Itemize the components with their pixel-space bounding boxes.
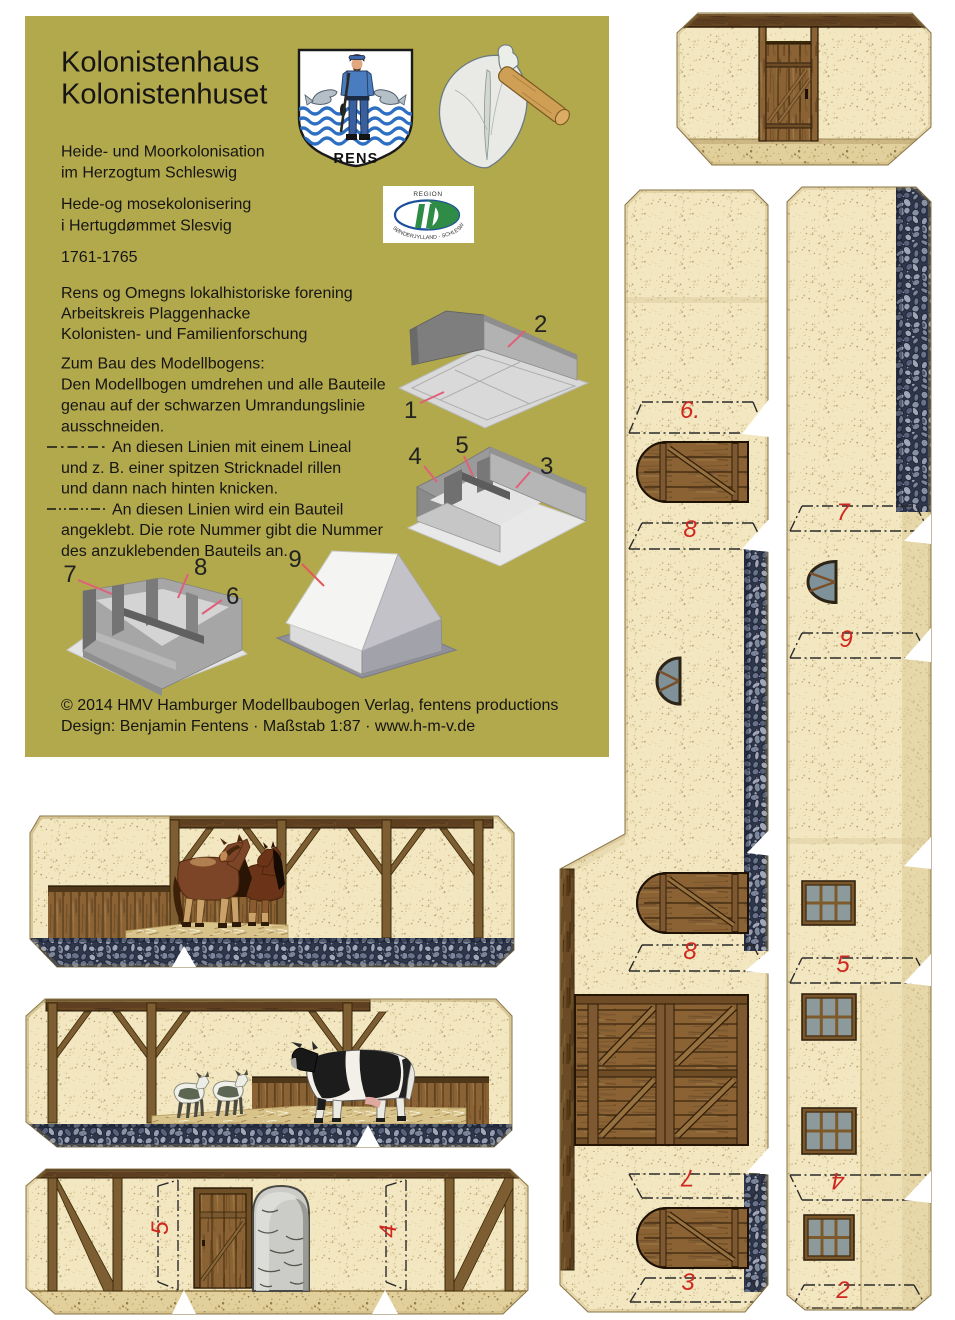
svg-text:An diesen Linien wird ein Baut: An diesen Linien wird ein Bauteil: [112, 502, 343, 519]
svg-text:und z. B. einer spitzen Strick: und z. B. einer spitzen Stricknadel rill…: [61, 460, 341, 477]
svg-text:des anzuklebenden Bauteils an.: des anzuklebenden Bauteils an.: [61, 543, 288, 560]
svg-text:Heide- und Moorkolonisation: Heide- und Moorkolonisation: [61, 144, 265, 161]
svg-text:ausschneiden.: ausschneiden.: [61, 419, 164, 436]
svg-text:Zum Bau des Modellbogens:: Zum Bau des Modellbogens:: [61, 356, 265, 373]
svg-text:genau auf der schwarzen Umrand: genau auf der schwarzen Umrandungslinie: [61, 398, 365, 415]
svg-text:1761-1765: 1761-1765: [61, 249, 138, 266]
svg-text:im Herzogtum Schleswig: im Herzogtum Schleswig: [61, 165, 237, 182]
svg-text:Kolonistenhaus: Kolonistenhaus: [61, 47, 259, 79]
svg-text:An diesen Linien mit einem Lin: An diesen Linien mit einem Lineal: [112, 439, 351, 456]
svg-text:Rens og Omegns lokalhistoriske: Rens og Omegns lokalhistoriske forening: [61, 285, 353, 302]
svg-text:Design: Benjamin Fentens · Maß: Design: Benjamin Fentens · Maßstab 1:87 …: [61, 718, 475, 735]
svg-text:Kolonisten- und Familienforsch: Kolonisten- und Familienforschung: [61, 326, 307, 343]
svg-text:und dann nach hinten knicken.: und dann nach hinten knicken.: [61, 481, 278, 498]
svg-text:Kolonistenhuset: Kolonistenhuset: [61, 79, 267, 111]
svg-text:Den Modellbogen umdrehen und a: Den Modellbogen umdrehen und alle Bautei…: [61, 377, 386, 394]
svg-text:angeklebt. Die rote Nummer gib: angeklebt. Die rote Nummer gibt die Numm…: [61, 522, 384, 539]
svg-text:Hede-og mosekolonisering: Hede-og mosekolonisering: [61, 196, 251, 213]
svg-text:© 2014 HMV Hamburger Modellbau: © 2014 HMV Hamburger Modellbaubogen Verl…: [61, 697, 558, 714]
svg-text:Arbeitskreis Plaggenhacke: Arbeitskreis Plaggenhacke: [61, 306, 251, 323]
svg-text:i Hertugdømmet Slesvig: i Hertugdømmet Slesvig: [61, 218, 232, 235]
